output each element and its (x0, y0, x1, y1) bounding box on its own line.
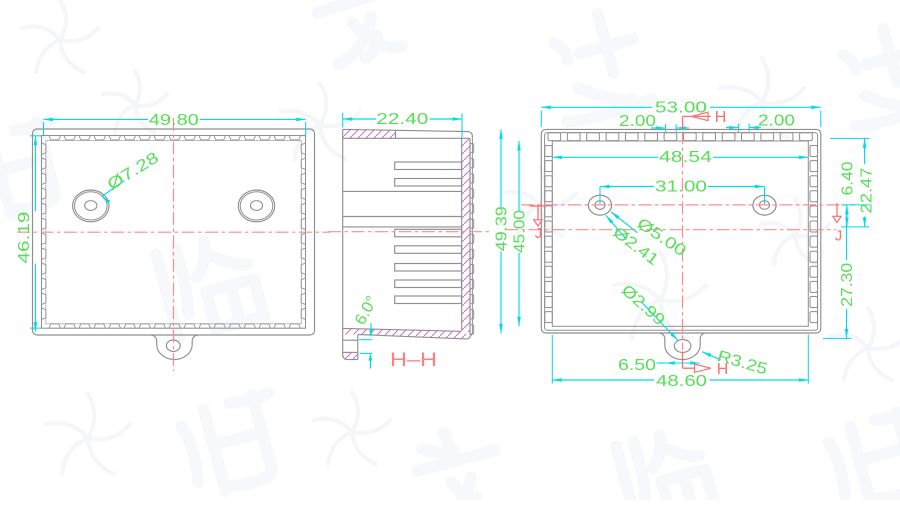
svg-text:27.30: 27.30 (839, 263, 856, 307)
svg-text:H: H (715, 109, 727, 126)
svg-text:H: H (717, 361, 729, 378)
svg-text:2.00: 2.00 (758, 112, 795, 129)
svg-text:J: J (835, 228, 843, 245)
svg-text:45.00: 45.00 (511, 210, 528, 253)
svg-text:48.60: 48.60 (656, 373, 707, 390)
svg-text:49.39: 49.39 (493, 206, 510, 251)
svg-text:H–H: H–H (390, 350, 437, 371)
svg-text:22.40: 22.40 (376, 111, 428, 128)
svg-text:31.00: 31.00 (655, 179, 707, 196)
svg-text:6.50: 6.50 (618, 357, 656, 374)
svg-text:22.47: 22.47 (858, 167, 875, 213)
svg-text:6.40: 6.40 (839, 161, 856, 195)
svg-text:46.19: 46.19 (16, 211, 33, 263)
svg-text:48.54: 48.54 (659, 149, 712, 166)
svg-text:49.80: 49.80 (149, 112, 199, 129)
svg-text:J: J (535, 225, 543, 242)
svg-text:2.00: 2.00 (619, 113, 656, 130)
